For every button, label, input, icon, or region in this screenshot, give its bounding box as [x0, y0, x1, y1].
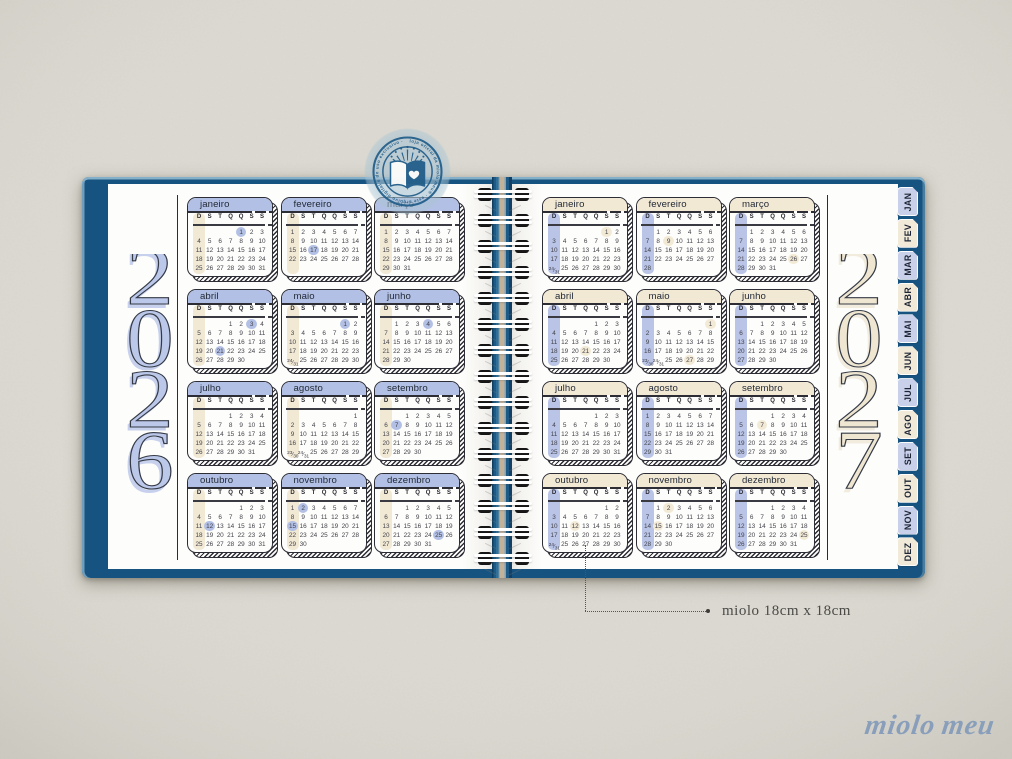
svg-text:6: 6	[126, 414, 173, 507]
svg-text:7: 7	[835, 414, 882, 507]
